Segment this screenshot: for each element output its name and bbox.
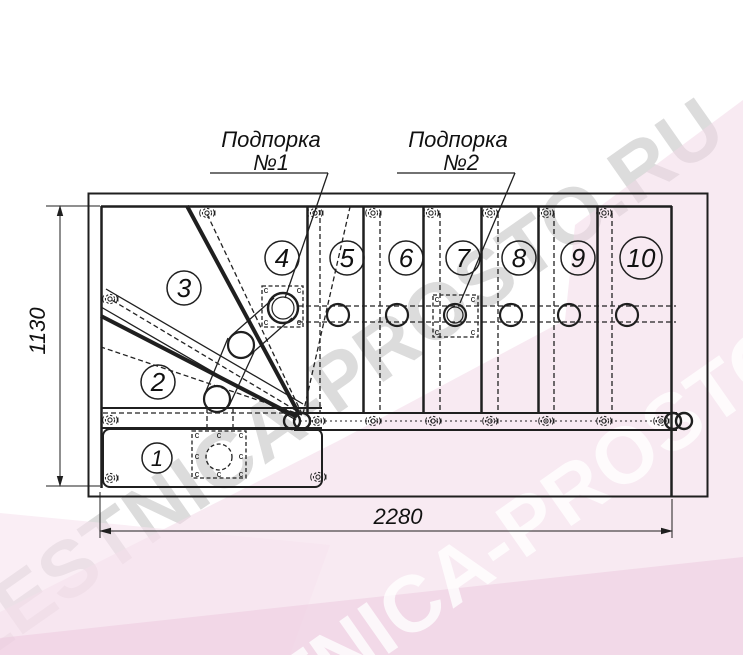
fastener-icon (426, 416, 441, 425)
corner-mark: c (471, 294, 476, 304)
step-number-9: 9 (571, 243, 585, 273)
corner-mark: c (435, 294, 440, 304)
fastener-icon (310, 416, 325, 425)
corner-mark: c (264, 285, 269, 295)
corner-mark: c (239, 451, 244, 461)
step-number-3: 3 (177, 273, 192, 303)
width-dimension-value: 2280 (373, 504, 424, 529)
inner-frame (101, 206, 672, 497)
step-number-10: 10 (627, 243, 656, 273)
corner-mark: c (297, 285, 302, 295)
fastener-icon (366, 416, 381, 425)
step-number-7: 7 (456, 243, 472, 273)
corner-mark: c (195, 430, 200, 440)
step-number-1: 1 (151, 446, 163, 471)
plan-canvas: 1 2 3 4 5 6 7 8 9 10 Подпорка №1 Подпорк… (0, 0, 743, 655)
support1-label: Подпорка (221, 127, 321, 152)
fastener-icon (539, 208, 554, 217)
step-number-2: 2 (150, 367, 166, 397)
outer-frame (89, 194, 708, 497)
corner-mark: c (239, 469, 244, 479)
dashed-lines (101, 207, 676, 432)
height-dimension-value: 1130 (25, 307, 50, 355)
support2-number: №2 (443, 150, 479, 175)
support1-number: №1 (253, 150, 289, 175)
corner-mark: c (217, 469, 222, 479)
corner-mark: c (297, 317, 302, 327)
support2-label: Подпорка (408, 127, 508, 152)
support-outlines (192, 286, 478, 478)
corner-mark: c (239, 430, 244, 440)
stair-plan-drawing: LESTNICA-PROSTO.RU LESTNICA-PROSTO.RU (0, 0, 743, 655)
fastener-icon (424, 208, 439, 217)
rails (102, 408, 677, 487)
corner-mark: c (471, 327, 476, 337)
corner-mark: c (264, 317, 269, 327)
corner-mark: c (195, 451, 200, 461)
fastener-icon (103, 473, 118, 482)
step-number-4: 4 (275, 243, 289, 273)
fastener-icon (311, 472, 326, 481)
step-number-8: 8 (512, 243, 527, 273)
step-number-5: 5 (340, 243, 355, 273)
corner-mark: c (195, 469, 200, 479)
newel-post (206, 444, 232, 470)
fastener-icon (103, 415, 118, 424)
fastener-icon (366, 208, 381, 217)
corner-mark: c (217, 430, 222, 440)
dimension-height (46, 205, 100, 487)
corner-marks: c c c c c c c c c c c c c c c c (195, 285, 476, 479)
fastener-icon (597, 416, 612, 425)
fastener-icon (597, 208, 612, 217)
first-step-landing (103, 429, 322, 487)
corner-mark: c (435, 327, 440, 337)
fastener-icon (483, 208, 498, 217)
step-number-6: 6 (399, 243, 414, 273)
